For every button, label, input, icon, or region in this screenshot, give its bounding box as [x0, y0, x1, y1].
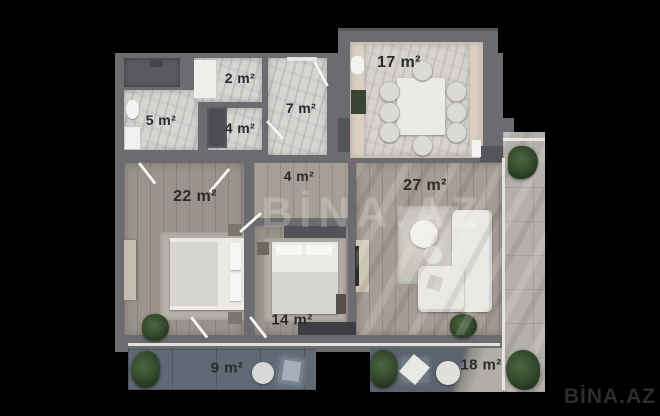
floor-plan-image: 2 m² 5 m² 4 m² 7 m² 17 m² 22 m² 4 m² 27 … — [0, 0, 660, 416]
side-table — [424, 246, 442, 264]
room-label-bedroom-main: 22 m² — [173, 188, 217, 206]
dining-chair — [446, 81, 467, 102]
toilet — [126, 100, 139, 119]
dining-chair — [446, 102, 467, 123]
nightstand — [228, 312, 242, 324]
terrace-railing-top — [503, 138, 545, 141]
dining-chair — [412, 135, 433, 156]
balcony-table — [252, 362, 274, 384]
sofa-chaise — [418, 266, 464, 312]
dining-chair — [379, 122, 400, 143]
dining-chair — [379, 102, 400, 123]
dresser — [124, 240, 136, 300]
room-label-bedroom-second: 14 m² — [271, 312, 312, 329]
kitchen-corner-wall — [480, 146, 503, 162]
bed-second-blanket — [272, 272, 338, 314]
railing — [128, 343, 500, 346]
dining-table — [397, 78, 445, 135]
terrace-palm — [506, 350, 540, 390]
balcony-armchair-cushion — [282, 360, 302, 382]
room-label-hallway: 7 m² — [286, 100, 316, 116]
washbasin — [124, 126, 141, 150]
bench — [336, 294, 346, 314]
kitchen-terrace-door — [472, 140, 481, 157]
kitchen-door — [338, 118, 350, 152]
bed-second-pillow — [306, 245, 332, 255]
shower-fixture — [150, 60, 163, 67]
watermark-corner: BİNA.AZ — [564, 385, 656, 409]
dining-chair — [446, 122, 467, 143]
bed-second-pillow — [276, 245, 302, 255]
room-label-terrace: 18 m² — [460, 357, 501, 374]
bed-main-pillow — [230, 274, 241, 301]
room-label-kitchen: 17 m² — [377, 54, 421, 72]
bed-main-blanket — [170, 242, 218, 306]
entrance-threshold — [287, 57, 317, 61]
dining-chair — [379, 81, 400, 102]
room-label-corridor: 4 m² — [284, 168, 314, 184]
closet-wardrobe — [194, 60, 218, 98]
room-label-closet: 2 m² — [225, 70, 255, 86]
terrace-table — [436, 361, 460, 385]
room-label-bathroom: 5 m² — [146, 112, 176, 128]
bed-main-pillow — [230, 243, 241, 270]
kitchen-plant-box — [351, 90, 366, 114]
room-label-balcony: 9 m² — [211, 360, 243, 377]
nightstand — [257, 242, 269, 255]
watermark-center: BİNA.AZ — [238, 189, 508, 238]
room-label-hall: 4 m² — [225, 120, 255, 136]
kitchen-sink — [351, 56, 364, 74]
tv — [355, 246, 359, 286]
balcony-plant — [131, 351, 160, 388]
